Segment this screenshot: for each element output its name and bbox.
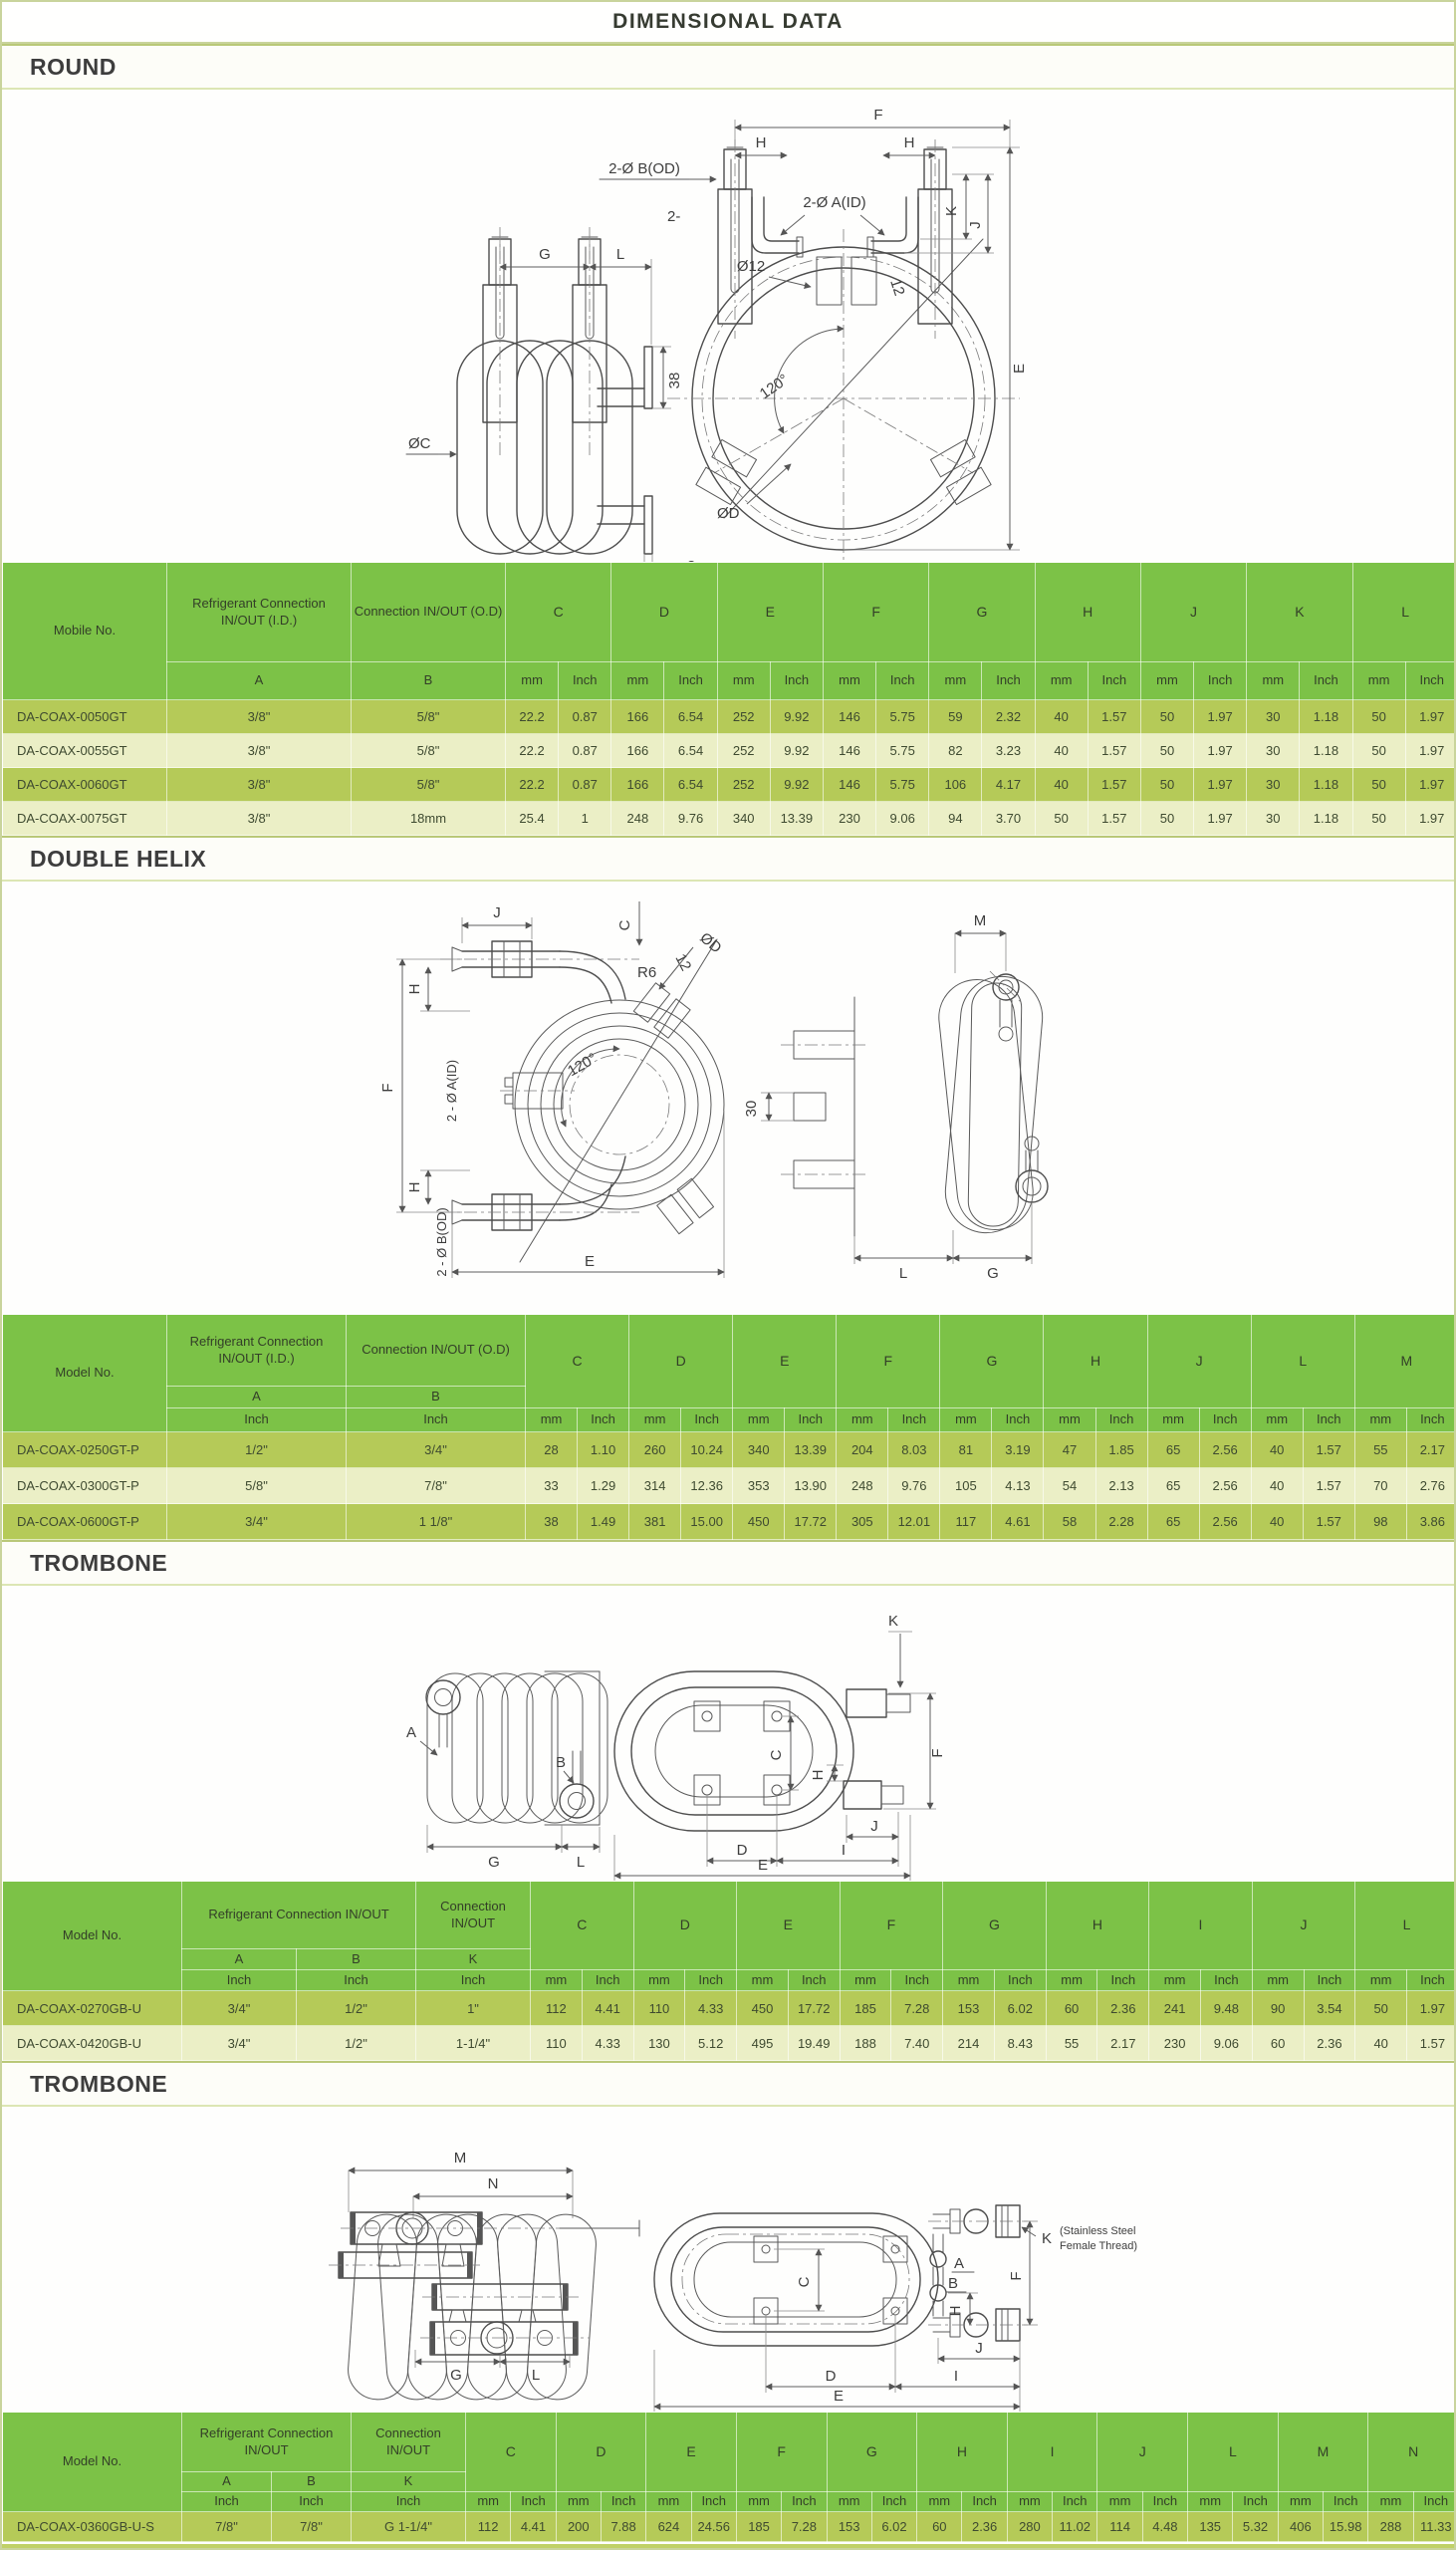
dim-label-e: E [1011,364,1028,374]
value-cell: 7/8" [347,1468,526,1504]
column-header: Inch [1142,2492,1187,2512]
column-header: G [929,563,1035,662]
table-row: DA-COAX-0050GT3/8"5/8"22.20.871666.54252… [3,700,1456,734]
value-cell: 2.13 [1095,1468,1147,1504]
column-header: mm [1140,662,1193,700]
column-header: Refrigerant Connection IN/OUT [182,1882,416,1949]
column-header: mm [717,662,770,700]
table-row: DA-COAX-0270GB-U3/4"1/2"1"1124.411104.33… [3,1991,1456,2026]
value-cell: 13.39 [770,802,823,836]
column-header: mm [506,662,559,700]
value-cell: 9.06 [1200,2026,1252,2061]
value-cell: 55 [1354,1432,1406,1468]
value-cell: 4.48 [1142,2512,1187,2542]
column-header: mm [827,2492,871,2512]
value-cell: 248 [611,802,664,836]
value-cell: 5.75 [876,768,929,802]
value-cell: 7.28 [891,1991,943,2026]
value-cell: 1.97 [1407,1991,1456,2026]
column-header: B [297,1949,416,1970]
column-header: Inch [962,2492,1007,2512]
label-o12: Ø12 [737,258,765,275]
column-header: mm [1097,2492,1142,2512]
column-header: Inch [416,1970,531,1991]
value-cell: 54 [1044,1468,1095,1504]
value-cell: 5/8" [167,1468,347,1504]
value-cell: 112 [466,2512,511,2542]
value-cell: 60 [917,2512,962,2542]
column-header: E [646,2413,737,2492]
value-cell: 5.12 [685,2026,737,2061]
label-a-id: 2 - Ø A(ID) [444,1060,459,1122]
column-header: B [347,1387,526,1408]
column-header: mm [929,662,982,700]
column-header: F [823,563,928,662]
column-header: Inch [1304,1970,1355,1991]
column-header: mm [943,1970,995,1991]
value-cell: 353 [733,1468,785,1504]
column-header: Inch [891,1970,943,1991]
table-row: DA-COAX-0600GT-P3/4"1 1/8"381.4938115.00… [3,1504,1456,1540]
column-header: Inch [352,2492,466,2512]
column-header: mm [466,2492,511,2512]
value-cell: 3/8" [167,768,352,802]
value-cell: 185 [736,2512,781,2542]
dim-label-l: L [616,246,624,263]
value-cell: 185 [840,1991,891,2026]
value-cell: 70 [1354,1468,1406,1504]
label-od: ØD [717,505,740,522]
value-cell: 30 [1247,802,1300,836]
value-cell: 2.17 [1406,1432,1456,1468]
table-trombone1: Model No.Refrigerant Connection IN/OUTCo… [2,1881,1456,2061]
section-heading-double-helix: DOUBLE HELIX [2,836,1454,882]
column-header: J [1140,563,1246,662]
column-header: Inch [601,2492,645,2512]
value-cell: 252 [717,700,770,734]
value-cell: 450 [733,1504,785,1540]
column-header: A [167,1387,347,1408]
column-header: mm [917,2492,962,2512]
value-cell: 3.23 [982,734,1035,768]
value-cell: 1.49 [578,1504,629,1540]
value-cell: 7/8" [272,2512,352,2542]
page-title-bar: DIMENSIONAL DATA [2,2,1454,44]
value-cell: 135 [1188,2512,1233,2542]
value-cell: 7.28 [782,2512,827,2542]
value-cell: 4.17 [982,768,1035,802]
value-cell: 1.57 [1303,1468,1354,1504]
value-cell: G 1-1/4" [352,2512,466,2542]
value-cell: 2.36 [1304,2026,1355,2061]
value-cell: 13.90 [785,1468,837,1504]
value-cell: 3/8" [167,802,352,836]
column-header: mm [1352,662,1405,700]
model-cell: DA-COAX-0360GB-U-S [3,2512,182,2542]
value-cell: 40 [1251,1504,1303,1540]
dim-label-g: G [539,246,551,263]
value-cell: 230 [823,802,875,836]
column-header: mm [737,1970,789,1991]
column-header: L [1251,1315,1354,1408]
column-header: mm [633,1970,685,1991]
dim-label-d: D [826,2368,837,2385]
value-cell: 50 [1140,802,1193,836]
label-12: 12 [886,277,907,298]
table-row: DA-COAX-0300GT-P5/8"7/8"331.2931412.3635… [3,1468,1456,1504]
value-cell: 24.56 [691,2512,736,2542]
dim-label-d: D [737,1842,748,1859]
table-row: DA-COAX-0075GT3/8"18mm25.412489.7634013.… [3,802,1456,836]
value-cell: 1-1/4" [416,2026,531,2061]
value-cell: 33 [526,1468,578,1504]
value-cell: 1.29 [578,1468,629,1504]
value-cell: 9.92 [770,768,823,802]
column-header: Inch [1194,662,1247,700]
double-helix-technical-drawing: 120° J [2,882,1456,1314]
value-cell: 50 [1140,700,1193,734]
value-cell: 4.13 [992,1468,1044,1504]
column-header: mm [611,662,664,700]
value-cell: 241 [1149,1991,1201,2026]
dim-label-m: M [454,2150,467,2167]
column-header: Inch [167,1408,347,1432]
value-cell: 5.75 [876,700,929,734]
cut-off-row-strip [2,2542,1454,2550]
dim-label-oc: ØC [408,435,431,452]
column-header: J [1097,2413,1188,2492]
column-header: Refrigerant Connection IN/OUT [182,2413,352,2472]
label-k: K [1042,2230,1052,2247]
value-cell: 12.01 [888,1504,940,1540]
value-cell: 146 [823,700,875,734]
column-header: Inch [1233,2492,1278,2512]
column-header: Inch [1097,1970,1149,1991]
value-cell: 1.18 [1300,734,1352,768]
column-header: J [1252,1882,1355,1970]
dim-label-k: K [943,206,960,216]
value-cell: 5.75 [876,734,929,768]
dim-label-j: J [967,221,984,229]
value-cell: 65 [1147,1504,1199,1540]
column-header: E [737,1882,841,1970]
value-cell: 50 [1355,1991,1407,2026]
value-cell: 2.56 [1199,1468,1251,1504]
double-helix-drawing-panel: 120° J [2,882,1454,1314]
value-cell: 3.70 [982,802,1035,836]
column-header: E [733,1315,837,1408]
label-od: ØD [696,929,724,957]
value-cell: 50 [1352,734,1405,768]
column-header: Inch [1300,662,1352,700]
label-a-id: 2-Ø A(ID) [803,194,865,211]
value-cell: 50 [1140,768,1193,802]
label-120: 120° [565,1050,600,1080]
value-cell: 188 [840,2026,891,2061]
value-cell: 40 [1035,700,1088,734]
column-header: H [1035,563,1140,662]
value-cell: 60 [1046,1991,1097,2026]
value-cell: 9.06 [876,802,929,836]
value-cell: 11.02 [1053,2512,1097,2542]
value-cell: 60 [1252,2026,1304,2061]
value-cell: 1/2" [297,2026,416,2061]
column-header: mm [646,2492,691,2512]
column-header: M [1354,1315,1456,1408]
value-cell: 1.97 [1194,734,1247,768]
dim-label-h: H [947,2306,964,2317]
value-cell: 248 [837,1468,888,1504]
value-cell: 7/8" [182,2512,272,2542]
value-cell: 6.02 [871,2512,916,2542]
value-cell: 6.54 [664,768,717,802]
dim-label-e: E [585,1253,595,1270]
value-cell: 3/8" [167,734,352,768]
value-cell: 17.72 [785,1504,837,1540]
value-cell: 2.56 [1199,1504,1251,1540]
trombone1-technical-drawing: A B G L [2,1586,1456,1881]
model-cell: DA-COAX-0420GB-U [3,2026,182,2061]
value-cell: 230 [1149,2026,1201,2061]
column-header: D [611,563,717,662]
value-cell: 9.92 [770,734,823,768]
value-cell: 314 [629,1468,681,1504]
value-cell: 65 [1147,1432,1199,1468]
column-header: H [917,2413,1008,2492]
column-header: Inch [1413,2492,1456,2512]
value-cell: 340 [717,802,770,836]
page-title: DIMENSIONAL DATA [612,10,844,34]
value-cell: 146 [823,734,875,768]
column-header: mm [837,1408,888,1432]
value-cell: 8.43 [994,2026,1046,2061]
model-cell: DA-COAX-0060GT [3,768,167,802]
column-header: C [506,563,611,662]
value-cell: 2.17 [1097,2026,1149,2061]
value-cell: 2.32 [982,700,1035,734]
column-header: Inch [1405,662,1456,700]
model-cell: DA-COAX-0250GT-P [3,1432,167,1468]
column-header: H [1044,1315,1147,1408]
column-header: Inch [982,662,1035,700]
dim-label-e: E [834,2388,844,2405]
value-cell: 624 [646,2512,691,2542]
dim-label-f: F [1008,2271,1025,2280]
dim-label-h2: H [904,134,915,151]
dim-label-c: C [768,1749,785,1760]
value-cell: 130 [633,2026,685,2061]
column-header: Inch [559,662,611,700]
column-header: mm [1355,1970,1407,1991]
value-cell: 252 [717,768,770,802]
column-header: Inch [992,1408,1044,1432]
value-cell: 9.92 [770,700,823,734]
dim-label-j: J [975,2340,983,2357]
value-cell: 450 [737,1991,789,2026]
section-heading-trombone-1: TROMBONE [2,1540,1454,1586]
value-cell: 47 [1044,1432,1095,1468]
value-cell: 3/8" [167,700,352,734]
value-cell: 5/8" [352,700,506,734]
value-cell: 4.61 [992,1504,1044,1540]
column-header: H [1046,1882,1149,1970]
column-header: L [1188,2413,1279,2492]
column-header: mm [1188,2492,1233,2512]
model-cell: DA-COAX-0050GT [3,700,167,734]
column-header: A [182,1949,297,1970]
value-cell: 1.97 [1194,768,1247,802]
table-row: DA-COAX-0250GT-P1/2"3/4"281.1026010.2434… [3,1432,1456,1468]
model-column-header: Model No. [3,2413,182,2512]
dim-label-h1: H [406,984,423,995]
value-cell: 1.97 [1405,768,1456,802]
value-cell: 1.57 [1407,2026,1456,2061]
trombone2-drawing-panel: M N [2,2107,1454,2412]
table-trombone2: Model No.Refrigerant Connection IN/OUTCo… [2,2412,1456,2542]
value-cell: 40 [1251,1432,1303,1468]
column-header: Inch [511,2492,556,2512]
value-cell: 2.36 [1097,1991,1149,2026]
column-header: mm [733,1408,785,1432]
value-cell: 280 [1007,2512,1052,2542]
label-b: B [556,1754,566,1771]
column-header: mm [1149,1970,1201,1991]
value-cell: 9.48 [1200,1991,1252,2026]
label-12: 12 [671,951,694,974]
column-header: Inch [578,1408,629,1432]
dim-label-k: K [888,1613,898,1630]
value-cell: 81 [940,1432,992,1468]
value-cell: 106 [929,768,982,802]
column-header: G [827,2413,917,2492]
label-a: A [954,2255,964,2272]
trombone2-technical-drawing: M N [2,2107,1456,2412]
value-cell: 15.00 [681,1504,733,1540]
column-header: mm [840,1970,891,1991]
column-header: E [717,563,823,662]
dim-label-h: H [810,1770,827,1781]
value-cell: 6.54 [664,700,717,734]
value-cell: 117 [940,1504,992,1540]
value-cell: 90 [1252,1991,1304,2026]
dim-label-f: F [379,1083,396,1092]
column-header: I [1149,1882,1253,1970]
column-header: mm [1147,1408,1199,1432]
value-cell: 2.28 [1095,1504,1147,1540]
value-cell: 2.76 [1406,1468,1456,1504]
trombone1-drawing-panel: A B G L [2,1586,1454,1881]
dim-label-f: F [929,1748,946,1757]
column-header: Inch [770,662,823,700]
value-cell: 1.18 [1300,700,1352,734]
value-cell: 146 [823,768,875,802]
round-technical-drawing: G L 38 3 ØC [2,90,1456,562]
dim-label-l: L [532,2367,540,2384]
value-cell: 1 [559,802,611,836]
value-cell: 7.40 [891,2026,943,2061]
dim-label-c: C [616,919,633,930]
value-cell: 58 [1044,1504,1095,1540]
value-cell: 1.10 [578,1432,629,1468]
value-cell: 340 [733,1432,785,1468]
value-cell: 50 [1352,768,1405,802]
value-cell: 40 [1251,1468,1303,1504]
value-cell: 11.33 [1413,2512,1456,2542]
value-cell: 55 [1046,2026,1097,2061]
column-header: D [556,2413,646,2492]
column-header: I [1007,2413,1097,2492]
value-cell: 18mm [352,802,506,836]
value-cell: 30 [1247,768,1300,802]
column-header: Inch [876,662,929,700]
value-cell: 0.87 [559,700,611,734]
column-header: mm [1251,1408,1303,1432]
model-cell: DA-COAX-0270GB-U [3,1991,182,2026]
value-cell: 406 [1278,2512,1323,2542]
value-cell: 3.54 [1304,1991,1355,2026]
value-cell: 1.18 [1300,768,1352,802]
column-header: Inch [1088,662,1140,700]
dim-label-m: M [974,912,987,929]
dim-label-j: J [493,904,501,921]
value-cell: 3/4" [167,1504,347,1540]
column-header: L [1355,1882,1456,1970]
column-header: Connection IN/OUT (O.D) [347,1315,526,1387]
column-header: mm [823,662,875,700]
value-cell: 1.97 [1405,802,1456,836]
value-cell: 1" [416,1991,531,2026]
column-header: Inch [1407,1970,1456,1991]
value-cell: 252 [717,734,770,768]
column-header: Refrigerant Connection IN/OUT (I.D.) [167,563,352,662]
value-cell: 1/2" [167,1432,347,1468]
column-header: F [840,1882,943,1970]
column-header: mm [1046,1970,1097,1991]
value-cell: 38 [526,1504,578,1540]
column-header: G [940,1315,1044,1408]
value-cell: 4.33 [582,2026,633,2061]
value-cell: 22.2 [506,700,559,734]
column-header: mm [1035,662,1088,700]
value-cell: 2.56 [1199,1432,1251,1468]
value-cell: 260 [629,1432,681,1468]
column-header: Inch [788,1970,840,1991]
table-row: DA-COAX-0360GB-U-S7/8"7/8"G 1-1/4"1124.4… [3,2512,1456,2542]
value-cell: 13.39 [785,1432,837,1468]
value-cell: 1.97 [1405,734,1456,768]
column-header: Inch [681,1408,733,1432]
value-cell: 9.76 [888,1468,940,1504]
column-header: K [352,2472,466,2492]
value-cell: 30 [1247,734,1300,768]
column-header: mm [1252,1970,1304,1991]
value-cell: 5.32 [1233,2512,1278,2542]
column-header: K [1247,563,1352,662]
column-header: M [1278,2413,1368,2492]
value-cell: 166 [611,700,664,734]
model-cell: DA-COAX-0055GT [3,734,167,768]
value-cell: 114 [1097,2512,1142,2542]
value-cell: 65 [1147,1468,1199,1504]
column-header: mm [629,1408,681,1432]
value-cell: 1/2" [297,1991,416,2026]
column-header: Inch [994,1970,1046,1991]
dim-label-f: F [873,107,882,124]
value-cell: 153 [827,2512,871,2542]
value-cell: 3/4" [347,1432,526,1468]
column-header: Inch [1095,1408,1147,1432]
value-cell: 5/8" [352,768,506,802]
